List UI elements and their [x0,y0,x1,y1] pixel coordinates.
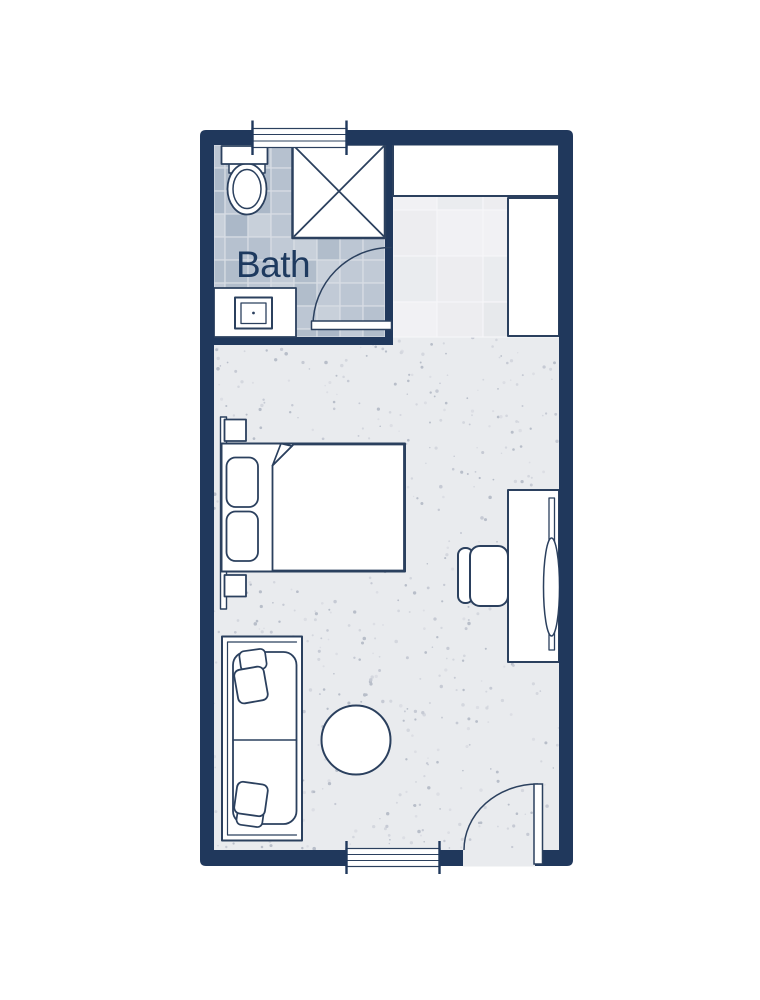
carpet-speckle [488,496,492,500]
carpet-speckle [358,435,360,437]
carpet-speckle [333,600,336,603]
carpet-speckle [215,661,217,663]
carpet-speckle [372,653,374,655]
carpet-speckle [361,641,364,644]
carpet-speckle [461,703,465,707]
carpet-speckle [326,708,328,710]
carpet-speckle [439,382,441,384]
carpet-speckle [530,484,533,487]
carpet-speckle [399,704,403,708]
carpet-speckle [399,793,402,796]
carpet-speckle [443,342,445,344]
carpet-speckle [354,829,357,832]
carpet-speckle [403,720,405,722]
carpet-speckle [220,365,222,367]
carpet-speckle [479,788,483,792]
carpet-speckle [438,674,440,676]
carpet-speckle [430,343,433,346]
floor-tile [363,260,385,283]
carpet-speckle [449,847,451,849]
carpet-speckle [398,430,399,431]
carpet-speckle [487,721,489,723]
carpet-speckle [253,437,256,440]
carpet-speckle [394,640,398,644]
carpet-speckle [460,787,462,789]
window-frame [252,129,347,148]
carpet-speckle [309,688,312,691]
carpet-speckle [260,404,263,407]
carpet-speckle [372,825,375,828]
carpet-speckle [416,497,418,499]
carpet-speckle [234,631,237,634]
sofa-throw-pillow [233,666,268,705]
carpet-speckle [263,402,265,404]
carpet-speckle [478,825,480,827]
carpet-speckle [438,509,440,511]
carpet-speckle [454,677,456,679]
carpet-speckle [522,405,524,407]
carpet-speckle [225,846,227,848]
carpet-speckle [499,415,502,418]
carpet-speckle [313,790,316,793]
carpet-speckle [482,379,484,381]
carpet-speckle [379,818,380,819]
carpet-speckle [488,607,491,610]
carpet-speckle [396,802,398,804]
carpet-speckle [318,650,321,653]
carpet-speckle [338,693,340,695]
carpet-speckle [511,431,514,434]
carpet-speckle [314,618,317,621]
carpet-speckle [312,634,314,636]
carpet-speckle [517,352,518,353]
floor-tile [214,168,225,191]
sofa-throw-pillow [233,781,268,817]
carpet-speckle [485,648,487,650]
carpet-speckle [415,781,417,783]
carpet-speckle [358,402,360,404]
carpet-speckle [415,815,418,818]
carpet-speckle [553,767,554,768]
carpet-speckle [369,678,372,681]
carpet-speckle [218,631,220,633]
carpet-speckle [410,841,413,844]
window-frame [346,849,440,867]
carpet-speckle [340,364,343,367]
carpet-speckle [379,425,381,427]
carpet-speckle [510,379,512,381]
carpet-speckle [406,656,409,659]
carpet-speckle [389,411,392,414]
floor-tile [317,237,340,260]
carpet-speckle [440,685,443,688]
carpet-speckle [467,606,469,608]
carpet-speckle [421,353,424,356]
carpet-speckle [333,408,336,411]
carpet-speckle [445,353,447,355]
carpet-speckle [429,422,431,424]
carpet-speckle [262,399,264,401]
carpet-speckle [425,463,427,465]
carpet-speckle [532,738,535,741]
carpet-speckle [406,708,408,710]
carpet-speckle [423,609,425,611]
carpet-speckle [473,486,475,488]
carpet-speckle [328,782,331,785]
carpet-speckle [269,844,272,847]
carpet-speckle [225,405,227,407]
carpet-speckle [406,729,410,733]
carpet-speckle [555,440,558,443]
carpet-speckle [365,693,368,696]
carpet-speckle [215,348,218,351]
carpet-speckle [508,804,510,806]
floor-tile [271,145,294,168]
carpet-speckle [405,791,407,793]
carpet-speckle [549,368,552,371]
carpet-speckle [460,471,463,474]
carpet-speckle [342,376,345,379]
carpet-speckle [445,553,448,556]
carpet-speckle [443,409,446,412]
bath-room-label: Bath [236,244,310,285]
carpet-speckle [333,401,336,404]
carpet-speckle [476,447,477,448]
carpet-speckle [363,637,367,641]
carpet-speckle [475,471,477,473]
carpet-speckle [402,836,405,839]
carpet-speckle [326,391,328,393]
carpet-speckle [375,675,378,678]
carpet-speckle [333,673,335,675]
carpet-speckle [452,468,455,471]
carpet-speckle [320,637,322,639]
carpet-speckle [540,690,542,692]
carpet-speckle [426,762,428,764]
carpet-speckle [532,372,535,375]
carpet-speckle [527,475,530,478]
shower [293,145,386,239]
carpet-speckle [288,379,290,381]
carpet-speckle [471,409,474,412]
carpet-speckle [328,609,330,611]
carpet-speckle [434,395,436,397]
carpet-speckle [345,359,348,362]
carpet-speckle [475,720,478,723]
carpet-speckle [424,401,427,404]
carpet-speckle [419,804,421,806]
carpet-speckle [273,581,276,584]
carpet-speckle [497,780,500,783]
carpet-speckle [447,374,449,376]
carpet-speckle [458,823,461,826]
floor-tile [393,196,437,210]
carpet-speckle [429,376,431,378]
carpet-speckle [471,414,473,416]
carpet-speckle [414,750,417,753]
carpet-speckle [358,658,361,661]
carpet-speckle [436,792,440,796]
floor-tile [437,210,483,256]
carpet-speckle [445,402,448,405]
carpet-speckle [451,567,454,570]
carpet-speckle [217,845,219,847]
carpet-speckle [352,836,355,839]
toilet-tank [222,146,268,164]
carpet-speckle [423,627,426,630]
carpet-speckle [289,411,291,413]
carpet-speckle [476,706,479,709]
carpet-speckle [259,408,262,411]
floor-tile [393,210,437,256]
carpet-speckle [321,602,324,605]
floor-tile [294,283,317,306]
carpet-speckle [385,350,387,352]
carpet-speckle [447,546,450,549]
carpet-speckle [359,629,362,632]
floor-tile [363,283,385,306]
carpet-speckle [216,367,220,371]
carpet-speckle [259,426,262,429]
carpet-speckle [518,429,521,432]
carpet-speckle [446,658,448,660]
carpet-speckle [441,717,443,719]
desk-mirror-lens [544,538,560,636]
carpet-speckle [415,403,417,405]
carpet-speckle [265,349,267,351]
carpet-speckle [484,518,487,521]
nightstand-bottom [225,575,247,597]
carpet-speckle [449,808,452,811]
floor-tile [437,256,483,302]
carpet-speckle [227,362,229,364]
carpet-speckle [373,623,376,626]
carpet-speckle [432,646,434,648]
carpet-speckle [378,669,381,672]
carpet-speckle [370,582,372,584]
carpet-speckle [531,477,533,479]
carpet-speckle [540,760,542,762]
floor-tile [214,237,225,260]
carpet-speckle [536,692,539,695]
carpet-speckle [417,830,421,834]
carpet-speckle [485,706,488,709]
carpet-speckle [386,812,389,815]
carpet-speckle [496,541,498,543]
carpet-speckle [512,448,515,451]
carpet-speckle [497,826,499,828]
carpet-speckle [336,394,338,396]
carpet-speckle [312,429,314,431]
carpet-speckle [301,847,303,849]
carpet-speckle [529,462,531,464]
carpet-speckle [369,682,372,685]
carpet-speckle [460,846,462,848]
carpet-speckle [385,825,388,828]
carpet-speckle [452,658,454,660]
chair-seat [470,546,508,606]
floor-tile [437,302,483,337]
carpet-speckle [353,610,356,613]
carpet-speckle [491,345,494,348]
carpet-speckle [542,365,545,368]
carpet-speckle [443,840,445,842]
carpet-speckle [336,375,338,377]
floor-tile [248,214,271,237]
carpet-speckle [478,541,480,543]
carpet-speckle [421,366,424,369]
wardrobe [508,198,559,336]
carpet-speckle [309,368,311,370]
sink-drain [252,312,255,315]
carpet-speckle [399,414,401,416]
carpet-speckle [463,654,466,657]
carpet-speckle [323,688,326,691]
carpet-speckle [237,386,240,389]
carpet-speckle [520,480,523,483]
carpet-speckle [314,610,316,612]
carpet-speckle [280,348,283,351]
carpet-speckle [334,803,336,805]
carpet-speckle [306,845,309,848]
carpet-speckle [469,838,472,841]
carpet-speckle [407,486,410,489]
carpet-speckle [362,427,364,429]
carpet-speckle [244,350,246,352]
carpet-speckle [551,379,553,381]
carpet-speckle [506,362,509,365]
carpet-speckle [427,563,429,565]
carpet-speckle [510,713,513,716]
carpet-speckle [414,718,416,720]
carpet-speckle [448,540,450,542]
floor-tile [271,191,294,214]
carpet-speckle [291,404,293,406]
carpet-speckle [404,710,406,712]
floor-tile [214,214,225,237]
carpet-speckle [407,393,409,395]
carpet-speckle [294,610,296,612]
carpet-speckle [214,810,217,813]
carpet-speckle [446,647,449,650]
carpet-speckle [467,473,469,475]
carpet-speckle [427,586,430,589]
carpet-speckle [263,628,265,630]
carpet-speckle [259,628,261,630]
carpet-speckle [462,770,464,772]
carpet-speckle [261,630,264,633]
carpet-speckle [234,370,237,373]
carpet-speckle [414,710,417,713]
carpet-speckle [328,639,330,641]
carpet-speckle [382,624,383,625]
carpet-speckle [369,577,372,580]
carpet-speckle [246,414,248,416]
carpet-speckle [411,477,413,479]
carpet-speckle [348,624,351,627]
carpet-speckle [254,622,258,626]
carpet-speckle [429,702,431,704]
carpet-speckle [256,620,259,623]
closet-shelf [393,145,559,197]
carpet-speckle [467,622,470,625]
carpet-speckle [439,419,442,422]
carpet-speckle [492,410,494,412]
carpet-speckle [322,437,325,440]
floor-tile [271,168,294,191]
carpet-speckle [282,604,284,606]
carpet-speckle [368,437,370,439]
carpet-speckle [379,656,381,658]
carpet-speckle [521,789,524,792]
carpet-speckle [397,599,399,601]
carpet-speckle [423,775,425,777]
carpet-speckle [360,347,362,349]
bathroom-door-leaf [312,321,392,330]
carpet-speckle [553,361,556,364]
carpet-speckle [530,811,533,814]
carpet-speckle [465,745,468,748]
carpet-speckle [407,380,410,383]
carpet-speckle [495,339,498,342]
carpet-speckle [260,605,263,608]
round-side-table [322,706,391,775]
carpet-speckle [381,348,384,351]
carpet-speckle [488,425,490,427]
carpet-speckle [456,689,458,691]
carpet-speckle [319,647,321,649]
carpet-speckle [312,808,315,811]
carpet-speckle [315,612,318,615]
entry-door-opening [463,849,535,867]
carpet-speckle [497,416,500,419]
carpet-speckle [405,584,408,587]
carpet-speckle [520,445,523,448]
carpet-speckle [381,700,384,703]
carpet-speckle [503,665,505,667]
carpet-speckle [328,381,331,384]
carpet-speckle [249,581,252,584]
carpet-speckle [462,689,464,691]
carpet-speckle [460,532,462,534]
carpet-speckle [405,758,407,760]
carpet-speckle [240,380,243,383]
carpet-speckle [400,351,403,354]
carpet-speckle [545,804,549,808]
carpet-speckle [217,357,220,360]
carpet-speckle [421,711,424,714]
carpet-speckle [424,651,427,654]
carpet-speckle [304,618,307,621]
carpet-speckle [420,834,422,836]
carpet-speckle [530,428,532,430]
carpet-speckle [323,665,325,667]
carpet-speckle [480,821,483,824]
bed-pillow [227,458,259,508]
carpet-speckle [510,359,513,362]
carpet-speckle [409,611,411,613]
carpet-speckle [512,824,515,827]
carpet-speckle [303,791,306,794]
carpet-speckle [216,500,218,502]
carpet-speckle [516,383,519,386]
carpet-speckle [389,839,391,841]
carpet-speckle [274,358,277,361]
carpet-speckle [324,385,326,387]
carpet-speckle [388,834,391,837]
carpet-speckle [443,584,445,586]
carpet-speckle [330,611,332,613]
